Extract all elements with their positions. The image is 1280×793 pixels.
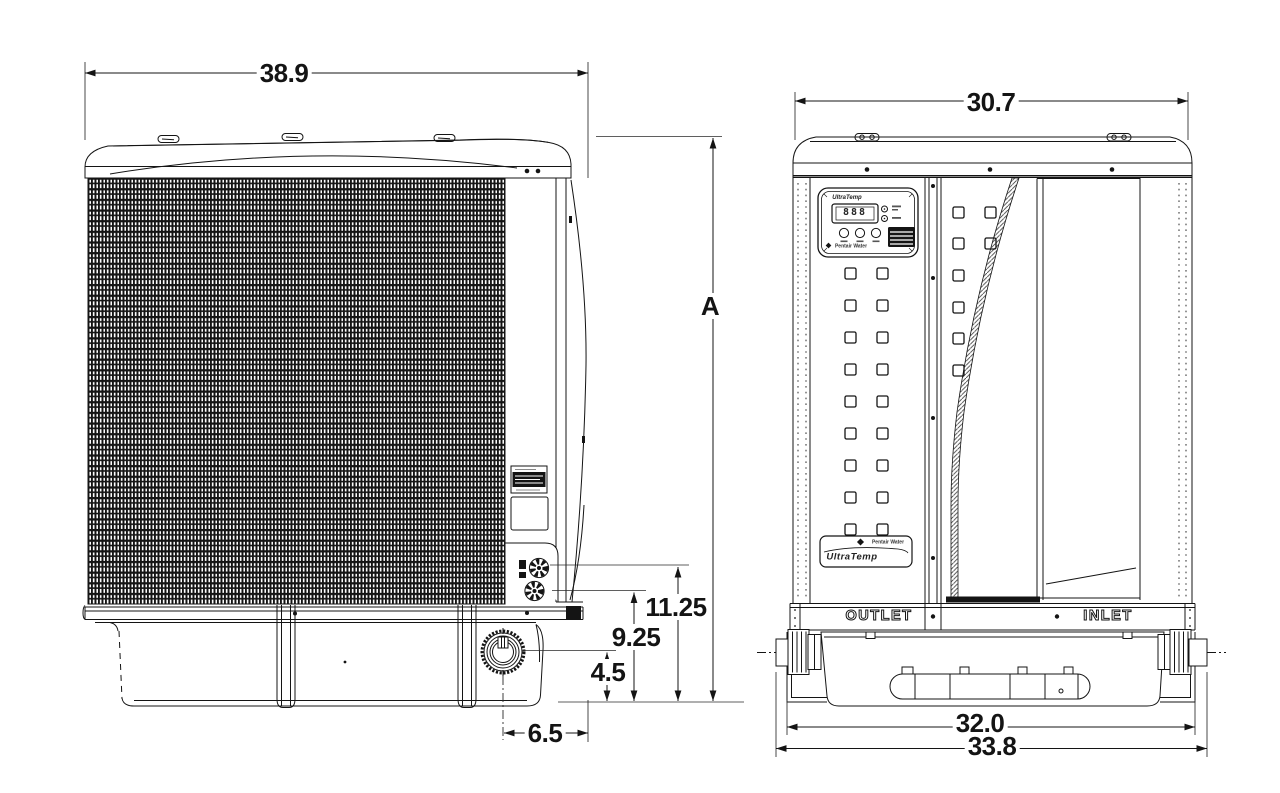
side-top-cap [85,134,571,179]
front-view [757,134,1226,707]
service-bracket [505,543,558,602]
outlet-label: OUTLET [846,609,913,624]
center-divider [925,178,941,604]
side-view [83,134,586,708]
display-value: 888 [843,208,867,218]
fan-side-panel [1037,178,1140,601]
line-art [0,0,1280,793]
inlet-label: INLET [1083,609,1132,624]
cap-latch [158,136,179,143]
dim-drain-height: 4.5 [588,659,629,685]
outlet-union [757,630,821,675]
mounting-strap [277,605,295,708]
panel-maker-logo: Pentair Water [835,245,867,250]
badge-logo: UltraTemp [826,552,877,562]
coil-grille [88,178,505,604]
dim-upper-port: 11.25 [642,594,709,620]
inlet-union [1158,630,1226,675]
dim-height-ref: A [698,293,722,319]
side-right-panel [556,178,586,602]
mounting-strap [458,605,476,708]
panel-brand-logo: UltraTemp [832,195,861,201]
front-top-cap [793,134,1192,178]
warning-label [511,466,547,493]
dim-lower-port: 9.25 [609,624,664,650]
dim-drain-offset: 6.5 [525,720,566,746]
dim-side-width: 38.9 [257,60,312,86]
cap-latch [282,134,303,141]
badge-maker: Pentair Water [872,541,904,546]
knob-lower [525,581,544,600]
drawing-canvas: 38.9 30.7 A 11.25 9.25 4.5 6.5 32.0 33.8… [0,0,1280,793]
front-base-pan [821,632,1164,706]
dim-base-overall: 33.8 [965,733,1020,759]
blank-label [511,497,548,530]
side-base-pan [95,605,543,708]
side-bottom-rail [83,606,583,621]
dim-front-width: 30.7 [964,89,1019,115]
drain-fitting [482,628,524,676]
